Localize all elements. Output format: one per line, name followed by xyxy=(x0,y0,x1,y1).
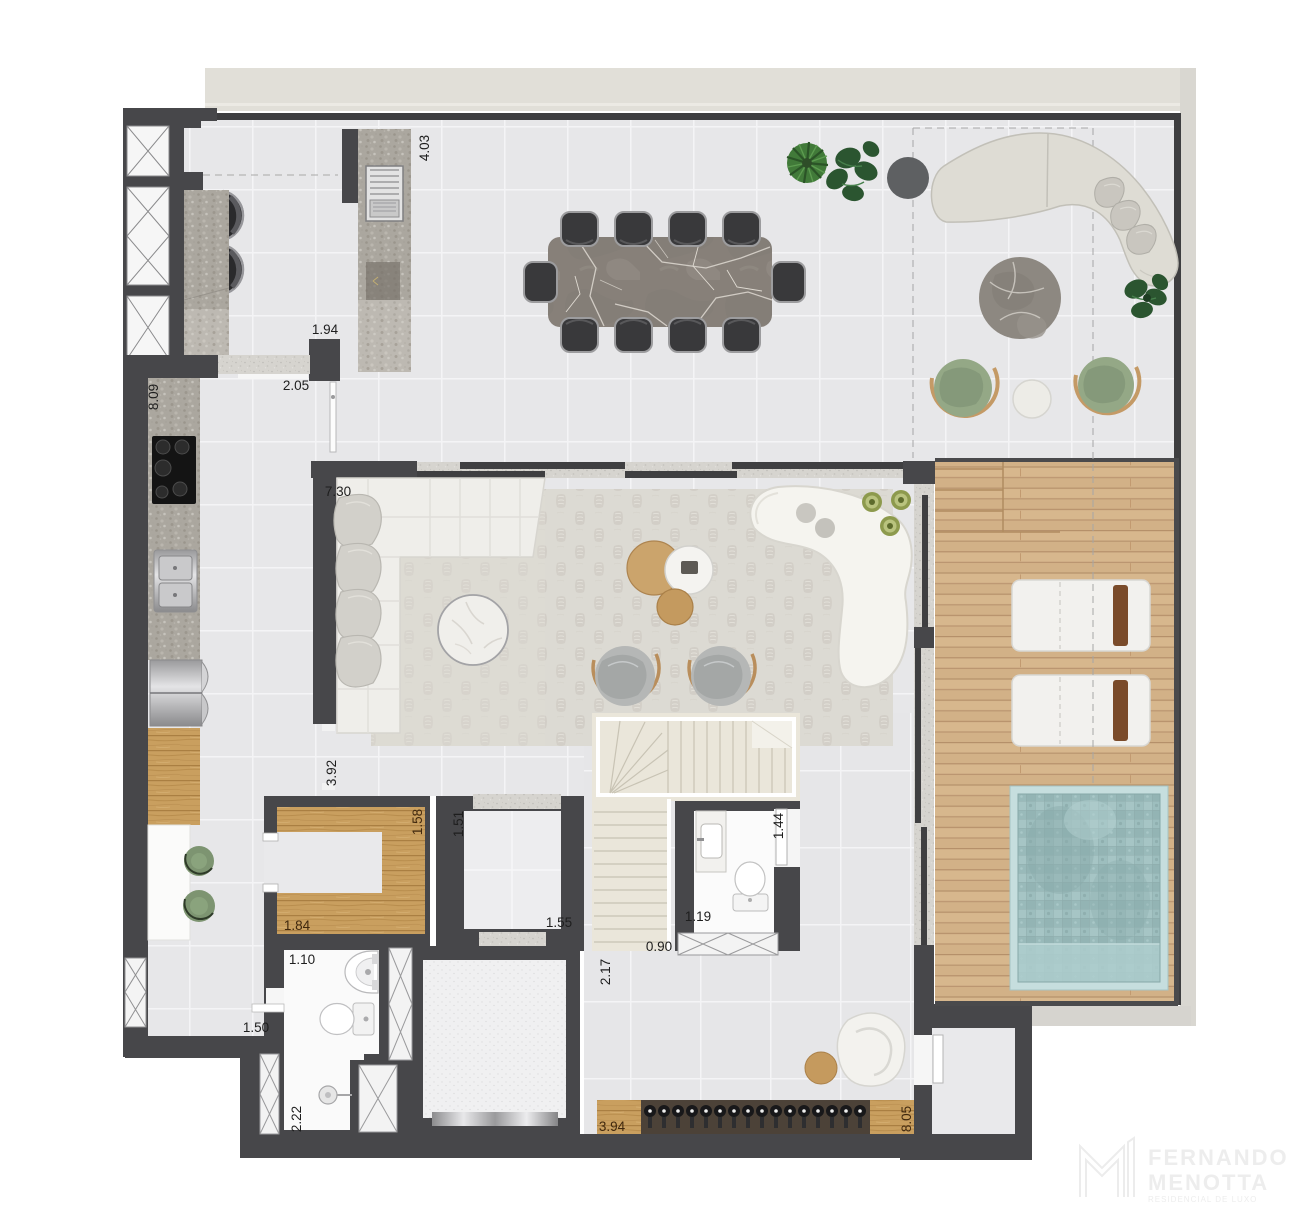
svg-text:1.44: 1.44 xyxy=(771,812,786,839)
svg-text:1.58: 1.58 xyxy=(410,809,425,835)
svg-text:1.55: 1.55 xyxy=(546,915,572,930)
svg-text:8.05: 8.05 xyxy=(899,1106,914,1132)
svg-text:1.51: 1.51 xyxy=(451,811,466,837)
svg-text:3.92: 3.92 xyxy=(324,760,339,786)
svg-text:7.30: 7.30 xyxy=(325,484,351,499)
svg-text:MENOTTA: MENOTTA xyxy=(1148,1170,1269,1195)
svg-text:3.94: 3.94 xyxy=(599,1119,626,1134)
svg-text:1.19: 1.19 xyxy=(685,909,711,924)
svg-text:RESIDENCIAL DE LUXO: RESIDENCIAL DE LUXO xyxy=(1148,1195,1257,1204)
svg-text:2.17: 2.17 xyxy=(598,959,613,985)
svg-text:8.09: 8.09 xyxy=(146,384,161,410)
svg-text:1.50: 1.50 xyxy=(243,1020,269,1035)
svg-text:1.94: 1.94 xyxy=(312,322,339,337)
svg-text:1.84: 1.84 xyxy=(284,918,311,933)
svg-text:2.22: 2.22 xyxy=(289,1106,304,1132)
svg-text:2.05: 2.05 xyxy=(283,378,309,393)
svg-text:4.03: 4.03 xyxy=(417,135,432,161)
svg-text:0.90: 0.90 xyxy=(646,939,672,954)
svg-text:FERNANDO: FERNANDO xyxy=(1148,1145,1289,1170)
svg-text:1.10: 1.10 xyxy=(289,952,315,967)
